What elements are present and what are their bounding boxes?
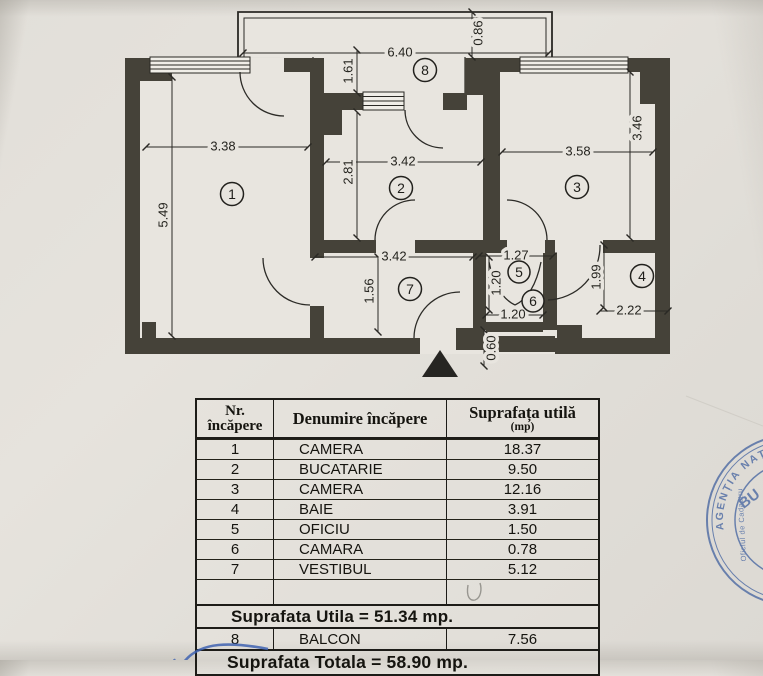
table-row: 4 BAIE 3.91 <box>197 499 598 519</box>
header-nr-incapere: Nr.încăpere <box>197 400 274 437</box>
room-badge-8: 8 <box>414 59 437 82</box>
table-row: 7 VESTIBUL 5.12 <box>197 559 598 579</box>
dim-room4-width: 2.22 <box>616 302 641 317</box>
dim-room4-height: 1.99 <box>588 264 603 289</box>
dim-room5-height: 1.20 <box>488 270 503 295</box>
balcon-row: 8 BALCON 7.56 <box>197 627 598 649</box>
dim-room3-width: 3.58 <box>565 143 590 158</box>
total-row: Suprafata Totala = 58.90 mp. <box>197 649 598 674</box>
dim-room1-height: 5.49 <box>155 202 170 227</box>
room-badge-3: 3 <box>566 176 589 199</box>
cadastre-stamp: AGENȚIA NAȚIONALĂ DE CADASTRU BU Oficiul… <box>688 416 763 624</box>
dim-room3-height: 3.46 <box>629 115 644 140</box>
svg-text:4: 4 <box>638 268 646 284</box>
dim-balcony-depth: 1.61 <box>340 58 355 83</box>
paper-crease <box>686 396 763 426</box>
svg-text:7: 7 <box>406 281 414 297</box>
table-row: 5 OFICIU 1.50 <box>197 519 598 539</box>
header-denumire: Denumire încăpere <box>274 400 447 437</box>
svg-text:3: 3 <box>573 179 581 195</box>
table-row: 6 CAMARA 0.78 <box>197 539 598 559</box>
svg-text:2: 2 <box>397 180 405 196</box>
svg-text:5: 5 <box>515 264 523 280</box>
svg-text:6: 6 <box>529 293 537 309</box>
room-badge-7: 7 <box>399 278 422 301</box>
scanned-floor-plan-document: { "plan": { "rooms": ["1","2","3","4","5… <box>0 0 763 660</box>
table-header-row: Nr.încăpere Denumire încăpere Suprafața … <box>197 400 598 439</box>
dim-room7-width: 3.42 <box>381 248 406 263</box>
table-row: 1 CAMERA 18.37 <box>197 439 598 459</box>
dim-balcony-rail: 0.86 <box>470 20 485 45</box>
room-badge-2: 2 <box>390 177 413 200</box>
window-room1 <box>150 57 250 73</box>
table-row: 3 CAMERA 12.16 <box>197 479 598 499</box>
area-table: Nr.încăpere Denumire încăpere Suprafața … <box>195 398 600 676</box>
room-badge-6: 6 <box>522 290 544 312</box>
dim-balcony-width: 6.40 <box>387 44 412 59</box>
entrance-triangle-icon <box>422 350 458 377</box>
svg-text:8: 8 <box>421 62 429 78</box>
empty-row <box>197 579 598 604</box>
dim-entry-recess: 0.60 <box>483 335 498 360</box>
stamp-center-text: BU <box>736 486 763 513</box>
dim-room7-height: 1.56 <box>361 278 376 303</box>
room-badge-1: 1 <box>221 183 244 206</box>
dim-room1-width: 3.38 <box>210 138 235 153</box>
dim-room2-height: 2.81 <box>340 159 355 184</box>
window-room2 <box>363 92 404 110</box>
header-suprafata: Suprafața utilă(mp) <box>447 400 598 437</box>
stamp-ring-text: AGENȚIA NAȚIONALĂ DE CADASTRU <box>697 424 763 581</box>
subtotal-row: Suprafata Utila = 51.34 mp. <box>197 604 598 627</box>
window-room3 <box>520 57 628 73</box>
stamp-office-text: Oficiul de Cadastru <box>735 488 748 562</box>
dim-room2-width: 3.42 <box>390 153 415 168</box>
room-badge-5: 5 <box>508 261 530 283</box>
room-badge-4: 4 <box>631 265 654 288</box>
svg-text:1: 1 <box>228 186 236 202</box>
table-row: 2 BUCATARIE 9.50 <box>197 459 598 479</box>
floor-plan-drawing: 6.40 0.86 1.61 3.38 5.49 3.42 2.81 3.58 … <box>0 0 763 396</box>
dim-room6-width: 1.20 <box>500 306 525 321</box>
dim-room5-width: 1.27 <box>503 247 528 262</box>
